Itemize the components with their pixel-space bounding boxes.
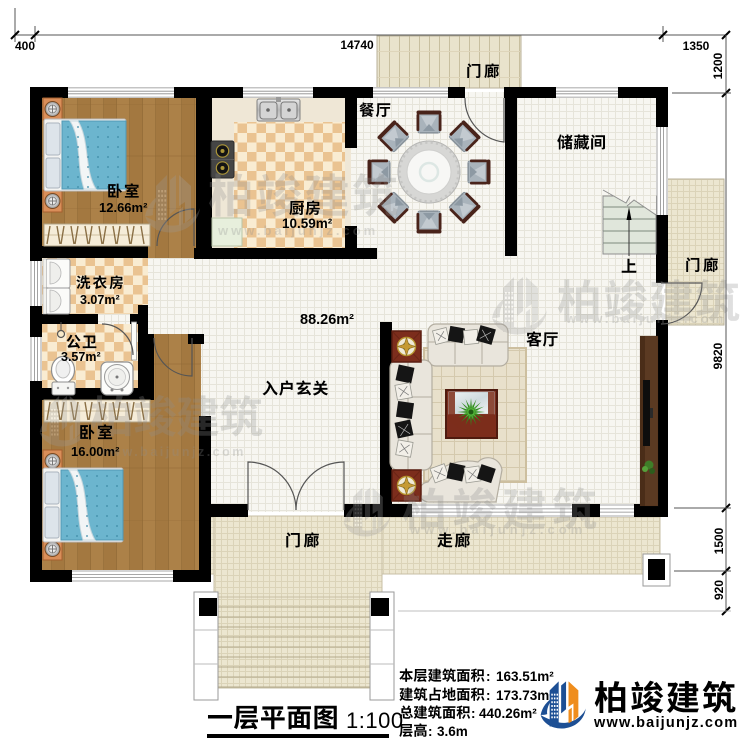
svg-text:12.66m²: 12.66m² xyxy=(99,200,148,215)
svg-text:173.73m²: 173.73m² xyxy=(496,688,554,703)
svg-text:1:100: 1:100 xyxy=(346,708,404,733)
svg-text:www.baijunjz.com: www.baijunjz.com xyxy=(565,311,726,326)
svg-text:1350: 1350 xyxy=(683,39,710,53)
svg-text:10.59m²: 10.59m² xyxy=(282,216,333,231)
svg-text:www.baijunjz.com: www.baijunjz.com xyxy=(593,715,738,731)
svg-text:1500: 1500 xyxy=(712,527,726,554)
svg-text:3.07m²: 3.07m² xyxy=(80,293,120,307)
svg-text:9820: 9820 xyxy=(711,342,725,369)
svg-text::: : xyxy=(486,688,491,703)
svg-text:1200: 1200 xyxy=(711,52,725,79)
svg-text::: : xyxy=(486,669,491,684)
svg-text:3.57m²: 3.57m² xyxy=(61,350,101,364)
svg-text::: : xyxy=(428,724,433,739)
svg-text:400: 400 xyxy=(15,39,35,53)
svg-text:163.51m²: 163.51m² xyxy=(496,669,554,684)
svg-text:14740: 14740 xyxy=(340,38,374,52)
svg-text:www.baijunjz.com: www.baijunjz.com xyxy=(409,522,586,537)
svg-text:3.6m: 3.6m xyxy=(437,724,468,739)
svg-text:88.26m²: 88.26m² xyxy=(300,312,354,328)
svg-text::: : xyxy=(471,706,476,721)
svg-text:920: 920 xyxy=(712,580,726,600)
svg-text:440.26m²: 440.26m² xyxy=(479,706,537,721)
svg-text:16.00m²: 16.00m² xyxy=(71,444,120,459)
